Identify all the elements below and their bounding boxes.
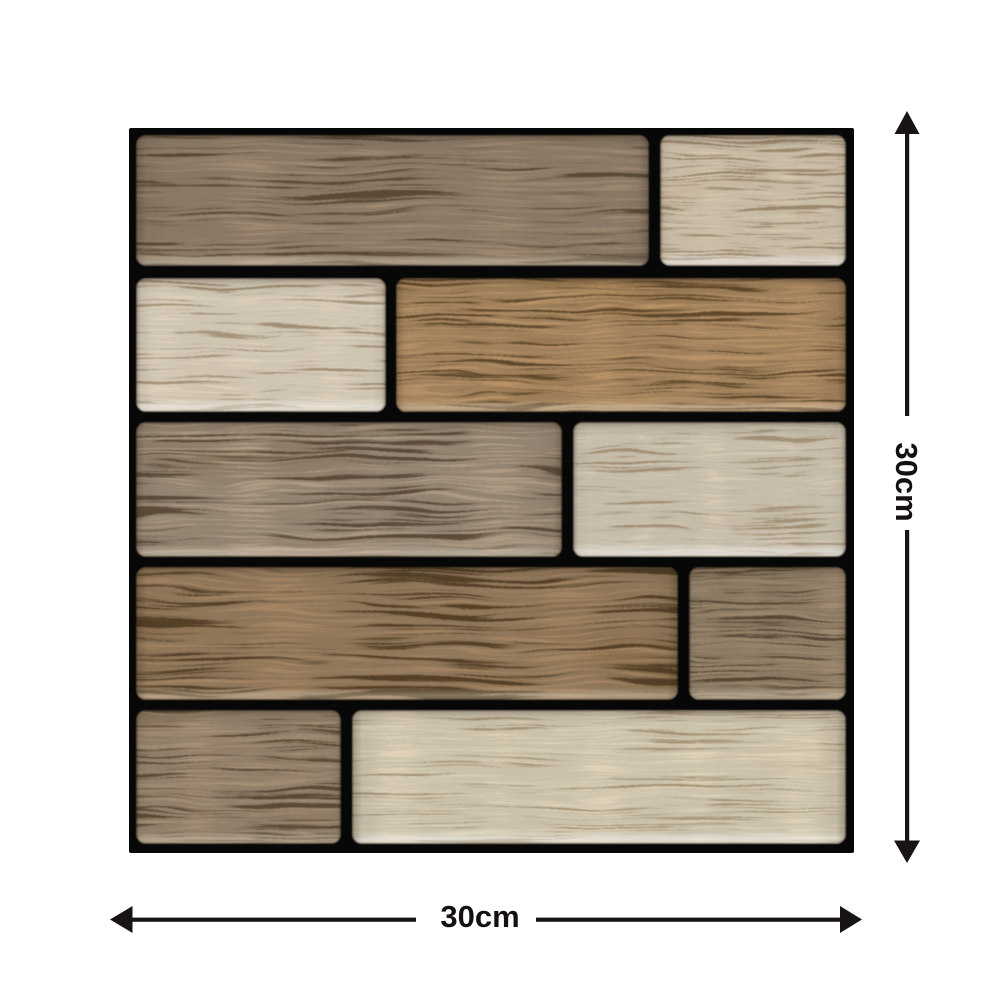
svg-text:30cm: 30cm: [889, 442, 924, 521]
svg-text:30cm: 30cm: [440, 899, 519, 934]
